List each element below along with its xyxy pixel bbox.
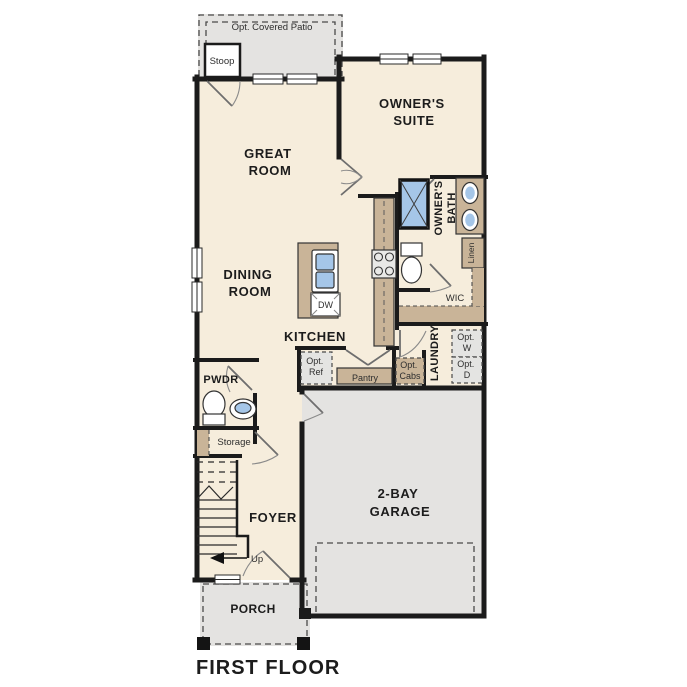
floor-plan-page: DW (0, 0, 687, 687)
storage-label: Storage (217, 437, 250, 448)
kitchen-label: KITCHEN (284, 329, 346, 344)
porch-post-right (297, 637, 310, 650)
storage-shelf (197, 430, 209, 456)
plan-title: FIRST FLOOR (196, 657, 340, 679)
opt-cabs-label: Opt. Cabs (399, 360, 421, 381)
window-suite-1 (380, 54, 408, 64)
patio-label: Opt. Covered Patio (232, 22, 313, 33)
window-greatroom-2 (287, 74, 317, 84)
pwdr-label: PWDR (203, 374, 238, 386)
pwdr-sink (230, 399, 256, 419)
owners-bath-label-1: OWNER'S (433, 181, 445, 236)
wall-garage-corner-step (299, 608, 311, 619)
garage-floor (302, 388, 484, 614)
floor-plan-canvas: DW (0, 0, 687, 687)
dishwasher: DW (311, 293, 340, 316)
porch-label: PORCH (230, 602, 275, 616)
window-greatroom-1 (253, 74, 283, 84)
owners-bath-label-2: BATH (446, 192, 458, 223)
laundry-label: LAUNDRY (429, 325, 441, 381)
linen-label: Linen (466, 242, 476, 263)
stairs-up-label: Up (251, 554, 263, 565)
opt-ref-label: Opt. Ref (306, 356, 326, 377)
window-suite-2 (413, 54, 441, 64)
pwdr-toilet (203, 391, 225, 425)
shower (400, 180, 428, 228)
kitchen-sink (312, 250, 338, 292)
porch-post-left (197, 637, 210, 650)
bath-vanity (456, 178, 484, 234)
foyer-label: FOYER (249, 510, 297, 525)
range-cooktop (372, 250, 396, 278)
window-dining-2 (192, 282, 202, 312)
window-dining-1 (192, 248, 202, 278)
pantry-label: Pantry (352, 373, 379, 383)
stoop-label: Stoop (210, 56, 235, 67)
window-front-sidelight (215, 575, 240, 584)
wic-label: WIC (446, 293, 465, 304)
dishwasher-label: DW (318, 300, 333, 310)
bath-toilet (401, 243, 422, 283)
